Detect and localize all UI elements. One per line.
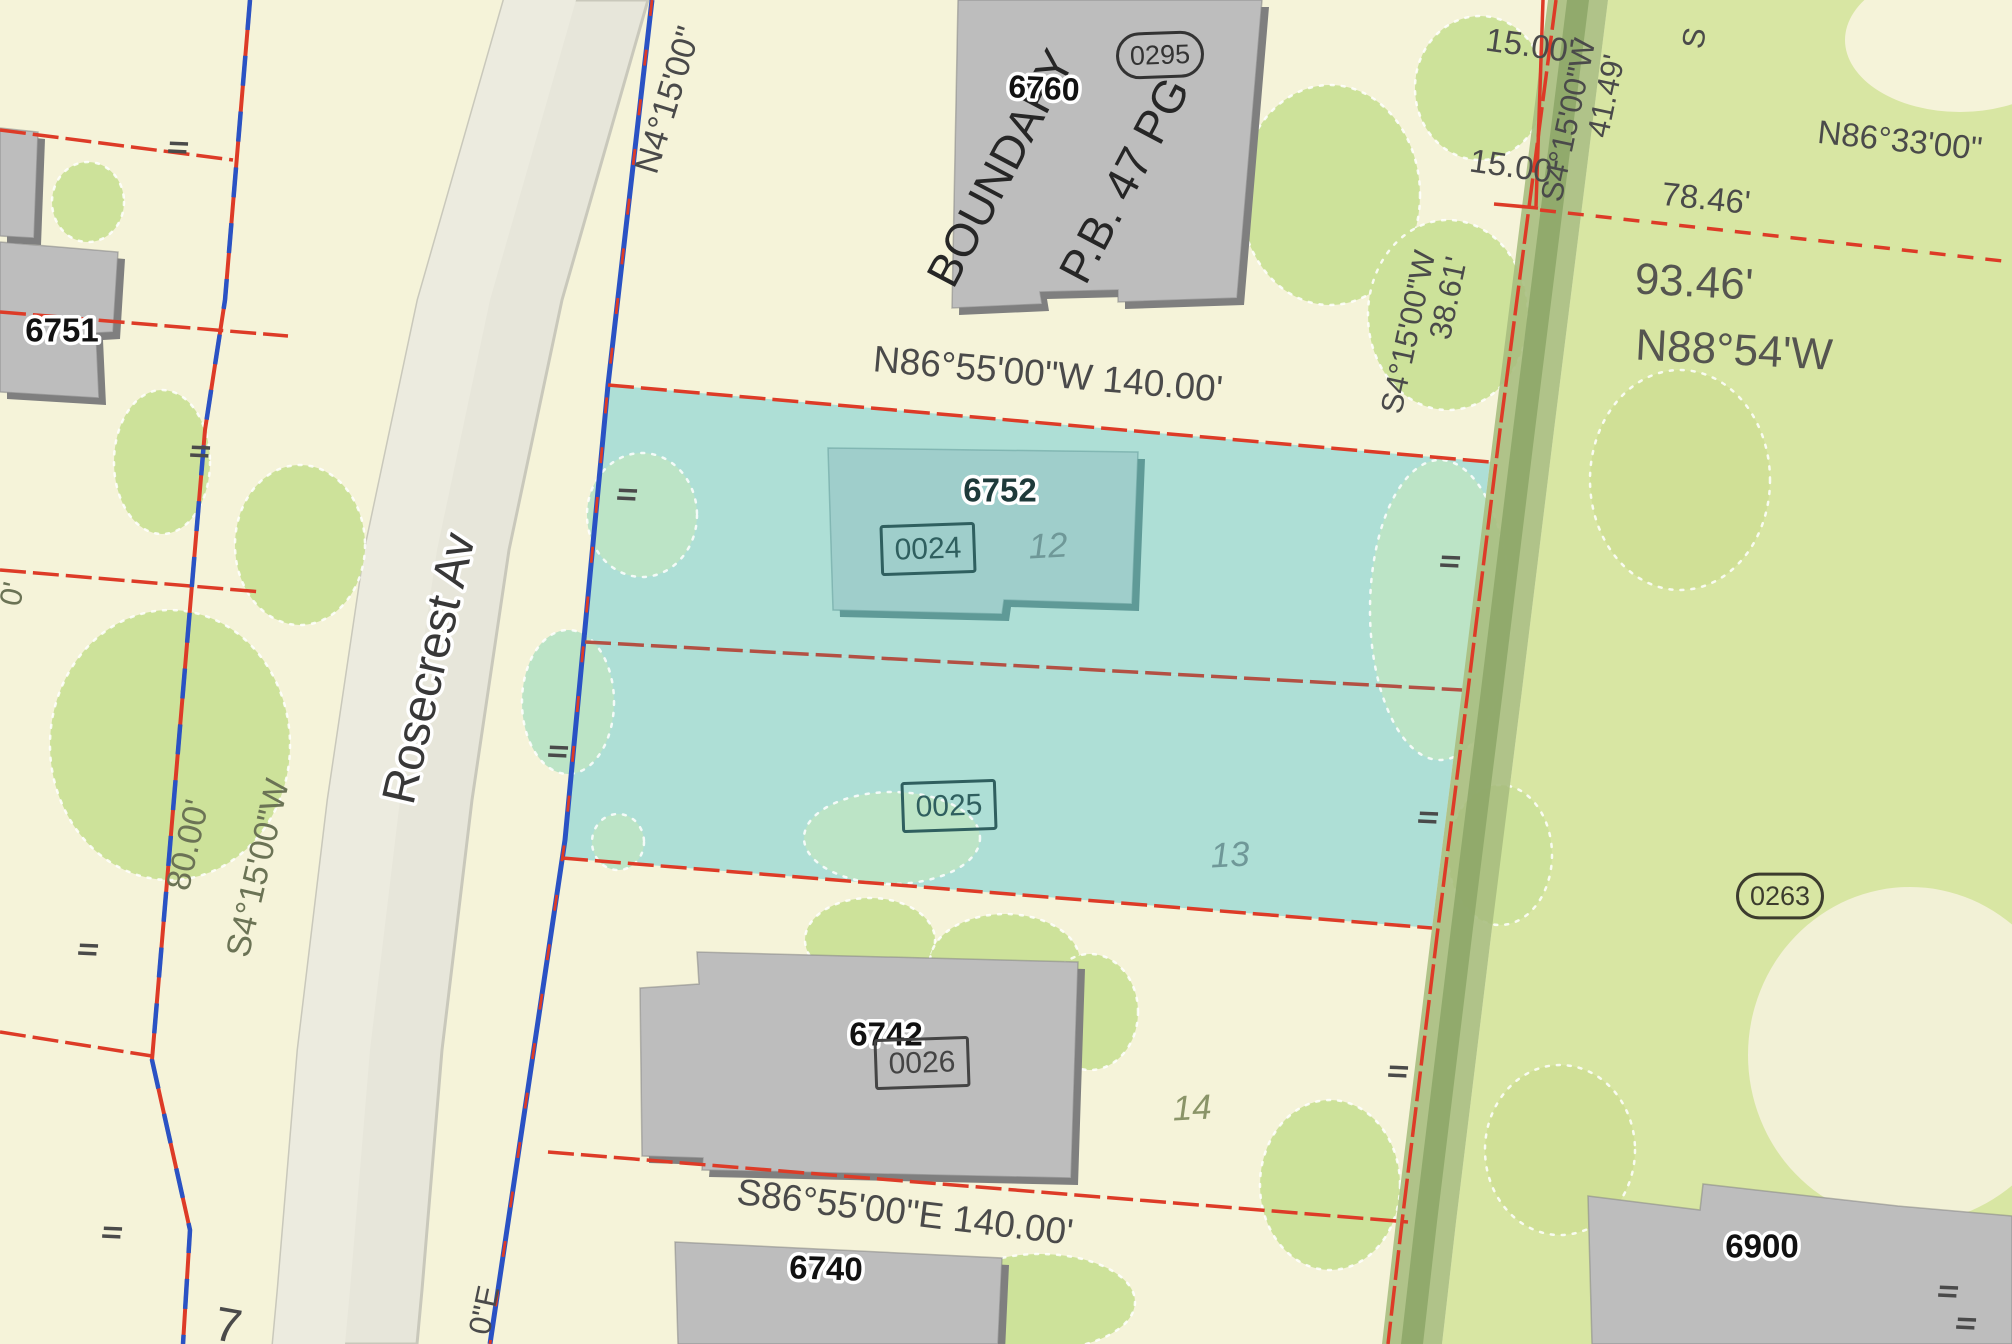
tree-canopy [114,390,210,534]
lot-id-0263: 0263 [1750,881,1810,911]
bearing-n88-54: N88°54'W [1634,320,1834,379]
parcel-6740-label-group: 6740 [789,1248,864,1288]
parcel-map-svg[interactable]: N4°15'00"BOUNDARYP.B. 47 PG6760029515.00… [0,0,2012,1344]
lot-id-0295: 0295 [1129,39,1190,71]
lot-id-0025: 0025 [915,788,983,823]
lot-13-label-group: 13 [1210,834,1251,875]
lot-id-0024: 0024 [894,531,962,566]
parcel-6760-label-group: 6760 [1008,68,1081,108]
lot-12-label-group: 12 [1028,526,1069,567]
parcel-6751-label: 6751 [25,312,98,349]
lot-12-label: 12 [1028,526,1069,567]
parcel-6900-label: 6900 [1725,1228,1798,1265]
parcel-6760-label: 6760 [1008,68,1081,108]
lot-13-label: 13 [1210,834,1251,875]
parcel-6740-label: 6740 [789,1248,864,1288]
tree-canopy [1590,370,1770,590]
parcel-6751-label-group: 6751 [25,312,98,349]
dim-93-46: 93.46' [1634,254,1755,309]
tree-canopy [1260,1100,1400,1270]
building-6742[interactable] [640,952,1078,1178]
building-corner-nw[interactable] [0,128,38,238]
parcel-6900-label-group: 6900 [1725,1228,1798,1265]
parcel-6752-label-group: 6752 [963,472,1036,509]
tree-canopy [235,465,365,625]
lot-14-label: 14 [1172,1088,1213,1129]
parcel-6752-label: 6752 [963,472,1036,509]
dim-93-46-group: 93.46' [1634,254,1755,309]
map-canvas[interactable]: N4°15'00"BOUNDARYP.B. 47 PG6760029515.00… [0,0,2012,1344]
tree-canopy [52,162,124,242]
lot-id-0026: 0026 [888,1045,956,1080]
bearing-n88-54-group: N88°54'W [1634,320,1834,379]
lot-14-label-group: 14 [1172,1088,1213,1129]
tree-canopy [587,453,697,577]
tree-canopy [522,630,614,774]
